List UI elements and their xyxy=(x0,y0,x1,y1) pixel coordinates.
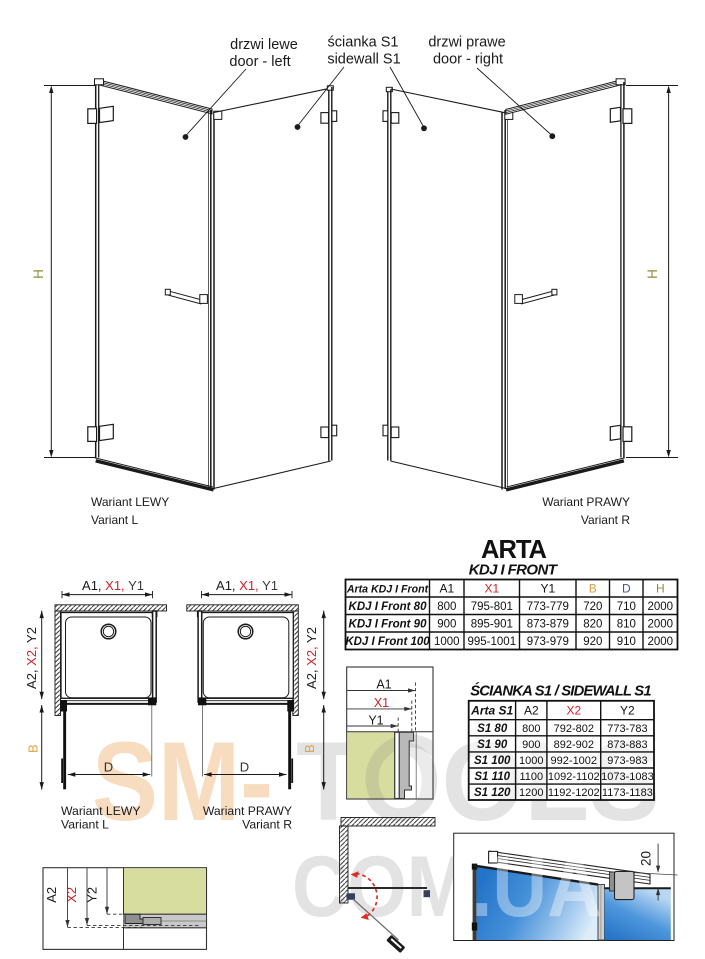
svg-text:S1 80: S1 80 xyxy=(477,723,508,735)
svg-text:A2: A2 xyxy=(524,704,539,718)
svg-text:900: 900 xyxy=(437,619,456,631)
svg-text:S1 110: S1 110 xyxy=(474,771,510,783)
svg-text:973-979: 973-979 xyxy=(527,636,569,648)
svg-text:H: H xyxy=(31,269,46,279)
svg-text:A2, X2, Y2: A2, X2, Y2 xyxy=(24,627,39,689)
svg-text:920: 920 xyxy=(583,636,602,648)
svg-text:Arta KDJ I Front: Arta KDJ I Front xyxy=(346,584,429,596)
svg-text:S1 100: S1 100 xyxy=(474,755,511,767)
svg-text:1000: 1000 xyxy=(434,636,460,648)
svg-text:ścianka S1: ścianka S1 xyxy=(328,35,399,51)
svg-text:D: D xyxy=(240,760,249,775)
svg-text:door - left: door - left xyxy=(229,54,290,70)
svg-text:Variant R: Variant R xyxy=(242,818,292,832)
svg-text:X1: X1 xyxy=(484,582,499,596)
svg-text:S1 90: S1 90 xyxy=(477,739,508,751)
svg-text:ARTA: ARTA xyxy=(481,536,547,564)
svg-text:S1 120: S1 120 xyxy=(474,787,511,799)
svg-text:X2: X2 xyxy=(64,887,79,903)
svg-text:1100: 1100 xyxy=(519,771,543,783)
svg-text:Y1: Y1 xyxy=(540,582,555,596)
svg-text:1092-1102: 1092-1102 xyxy=(548,771,600,783)
svg-text:D: D xyxy=(104,760,113,775)
svg-text:Y2: Y2 xyxy=(620,704,635,718)
svg-text:20: 20 xyxy=(639,851,654,866)
svg-text:873-879: 873-879 xyxy=(527,619,569,631)
svg-text:D: D xyxy=(622,582,631,596)
svg-text:773-783: 773-783 xyxy=(607,723,647,735)
svg-text:sidewall S1: sidewall S1 xyxy=(327,52,400,68)
svg-text:KDJ I Front 90: KDJ I Front 90 xyxy=(349,619,428,631)
svg-text:1200: 1200 xyxy=(519,787,543,799)
svg-text:1000: 1000 xyxy=(519,755,543,767)
svg-text:drzwi lewe: drzwi lewe xyxy=(230,37,298,53)
svg-text:X1: X1 xyxy=(374,696,389,710)
svg-text:795-801: 795-801 xyxy=(471,601,513,613)
svg-text:A1, X1, Y1: A1, X1, Y1 xyxy=(216,578,278,593)
svg-text:720: 720 xyxy=(583,601,602,613)
svg-text:792-802: 792-802 xyxy=(554,723,594,735)
svg-text:873-883: 873-883 xyxy=(607,739,647,751)
svg-text:992-1002: 992-1002 xyxy=(551,755,598,767)
svg-text:900: 900 xyxy=(522,739,540,751)
svg-text:800: 800 xyxy=(522,723,540,735)
svg-text:H: H xyxy=(645,269,660,279)
svg-text:Wariant LEWY: Wariant LEWY xyxy=(91,495,169,509)
svg-text:Y1: Y1 xyxy=(368,714,383,728)
svg-text:H: H xyxy=(656,582,665,596)
svg-text:KDJ I FRONT: KDJ I FRONT xyxy=(469,562,559,579)
svg-text:1173-1183: 1173-1183 xyxy=(602,787,653,799)
svg-text:895-901: 895-901 xyxy=(471,619,513,631)
svg-text:B: B xyxy=(302,744,317,753)
svg-text:Wariant PRAWY: Wariant PRAWY xyxy=(542,495,630,509)
svg-text:710: 710 xyxy=(617,601,636,613)
svg-text:Variant L: Variant L xyxy=(61,818,109,832)
svg-text:Variant R: Variant R xyxy=(581,513,630,527)
svg-text:Variant L: Variant L xyxy=(91,513,138,527)
svg-text:door - right: door - right xyxy=(433,52,503,68)
svg-text:A1: A1 xyxy=(439,582,454,596)
svg-text:773-779: 773-779 xyxy=(527,601,569,613)
svg-text:drzwi prawe: drzwi prawe xyxy=(428,35,505,51)
svg-text:910: 910 xyxy=(617,636,636,648)
svg-text:800: 800 xyxy=(437,601,456,613)
svg-text:A2: A2 xyxy=(44,887,59,903)
svg-text:1073-1083: 1073-1083 xyxy=(601,771,654,783)
svg-text:KDJ I Front 80: KDJ I Front 80 xyxy=(349,601,428,613)
svg-text:Y2: Y2 xyxy=(85,887,100,903)
svg-text:B: B xyxy=(26,744,41,753)
svg-text:973-983: 973-983 xyxy=(607,755,647,767)
svg-text:820: 820 xyxy=(583,619,602,631)
svg-text:2000: 2000 xyxy=(648,601,674,613)
svg-text:B: B xyxy=(589,582,597,596)
svg-text:892-902: 892-902 xyxy=(554,739,594,751)
svg-text:ŚCIANKA S1 / SIDEWALL S1: ŚCIANKA S1 / SIDEWALL S1 xyxy=(470,682,651,700)
svg-text:995-1001: 995-1001 xyxy=(467,636,516,648)
svg-text:A1, X1, Y1: A1, X1, Y1 xyxy=(82,578,144,593)
svg-text:1192-1202: 1192-1202 xyxy=(548,787,600,799)
svg-text:810: 810 xyxy=(617,619,636,631)
svg-text:X2: X2 xyxy=(566,704,581,718)
svg-text:2000: 2000 xyxy=(648,619,674,631)
svg-text:Wariant LEWY: Wariant LEWY xyxy=(61,804,140,818)
svg-text:2000: 2000 xyxy=(648,636,674,648)
svg-text:Arta S1: Arta S1 xyxy=(470,704,513,718)
svg-text:A2, X2, Y2: A2, X2, Y2 xyxy=(304,627,319,689)
svg-text:KDJ I Front 100: KDJ I Front 100 xyxy=(345,636,430,648)
svg-text:Wariant PRAWY: Wariant PRAWY xyxy=(203,804,292,818)
svg-text:A1: A1 xyxy=(376,678,391,692)
